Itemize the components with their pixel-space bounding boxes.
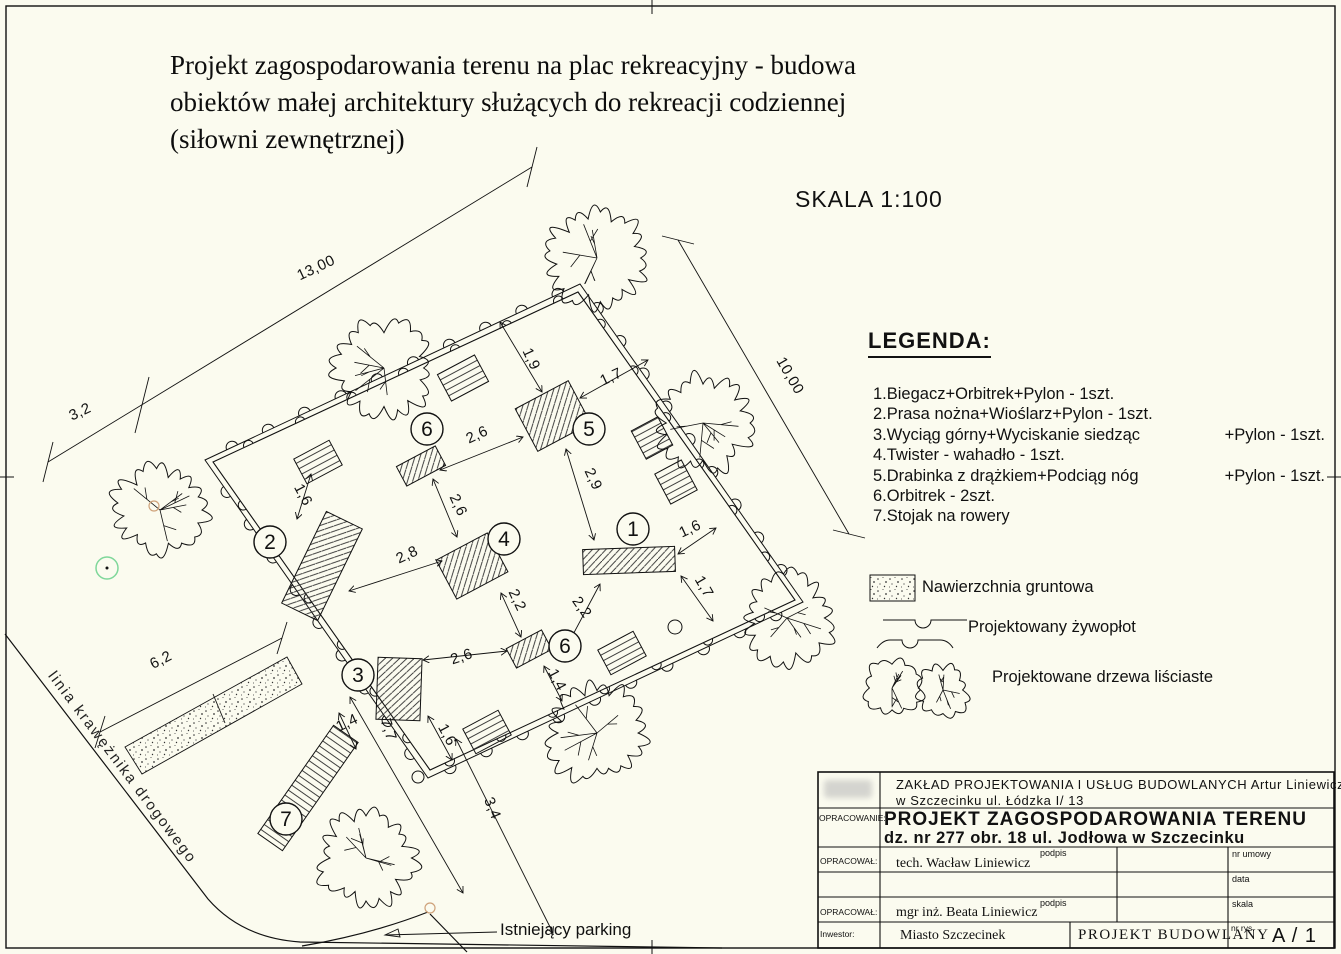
point-marker [668,620,682,634]
hedge-symbol [877,620,967,648]
svg-text:1,6: 1,6 [434,721,460,749]
svg-text:10,00: 10,00 [773,354,808,397]
legend-item: 7.Stojak na rowery [873,506,1325,526]
svg-text:6: 6 [421,418,433,441]
svg-text:1,7: 1,7 [691,573,717,601]
svg-text:1,4: 1,4 [544,666,570,694]
svg-text:2,6: 2,6 [448,645,475,668]
marker-3: 3 [342,659,374,691]
svg-text:7: 7 [280,808,292,831]
svg-text:2,2: 2,2 [568,593,595,621]
ground-surface-path [125,657,302,774]
equipment-item-7-bike-rack [258,725,358,850]
stamp-blur [824,780,872,798]
marker-7: 7 [270,803,302,835]
svg-text:1,6: 1,6 [676,516,703,541]
equipment-item-2 [282,511,363,620]
equipment-item-1 [583,546,676,574]
marker-4: 4 [488,523,520,555]
opracowal-label-1: OPRACOWAŁ: [820,856,877,866]
legend-item: 2.Prasa nożna+Wioślarz+Pylon - 1szt. [873,404,1325,424]
page-title-line-1: Projekt zagospodarowania terenu na plac … [170,50,856,81]
tree-icon [317,807,422,908]
inwestor-value: Miasto Szczecinek [900,928,1005,944]
company-name-line-1: ZAKŁAD PROJEKTOWANIA I USŁUG BUDOWLANYCH… [896,777,1341,792]
drawing-number: A / 1 [1272,925,1317,948]
marker-2: 2 [254,526,286,558]
point-marker [412,771,424,783]
marker-6b: 6 [549,630,581,662]
point-marker [425,903,435,913]
legend-symbol-label-ground: Nawierzchnia gruntowa [922,578,1094,597]
svg-text:2,6: 2,6 [463,422,490,447]
legend-item: 6.Orbitrek - 2szt. [873,486,1325,506]
page-title-line-2: obiektów małej architektury służących do… [170,87,846,118]
legend-item: 5.Drabinka z drążkiem+Podciąg nóg+Pylon … [873,466,1325,486]
bench [598,631,646,675]
svg-text:2,8: 2,8 [393,542,420,567]
svg-text:1: 1 [627,518,639,541]
project-title-line-1: PROJEKT ZAGOSPODAROWANIA TERENU [884,809,1307,831]
inwestor-label: Inwestor: [820,929,855,939]
tree-symbols [863,658,970,718]
svg-text:2,6: 2,6 [446,491,471,518]
ground-surface-swatch [870,575,915,601]
legend-symbol-label-trees: Projektowane drzewa liściaste [992,668,1213,687]
svg-text:2: 2 [264,531,276,554]
tree-icon [863,658,925,714]
page-title-line-3: (siłowni zewnętrznej) [170,124,405,155]
svg-text:6: 6 [559,635,571,658]
svg-text:13,00: 13,00 [294,252,337,284]
opracowanie-label: OPRACOWANIE: [819,813,886,823]
svg-text:5: 5 [583,418,595,441]
svg-text:6,2: 6,2 [147,647,175,672]
opracowal-label-2: OPRACOWAŁ: [820,907,877,917]
equipment-item-3 [376,657,422,720]
svg-text:3,2: 3,2 [66,399,93,424]
svg-text:4: 4 [498,528,510,551]
svg-text:3,4: 3,4 [480,795,504,822]
author-2: mgr inż. Beata Liniewicz [896,905,1038,921]
svg-text:2,9: 2,9 [581,465,606,492]
marker-1: 1 [617,513,649,545]
equipment-item-6a [396,446,445,486]
bench [463,710,511,754]
data-label: data [1232,874,1250,884]
bench [655,460,697,504]
bench [294,440,342,484]
legend-heading: LEGENDA: [868,328,991,358]
svg-text:1,9: 1,9 [519,345,544,372]
tree-icon [545,680,650,783]
author-1: tech. Wacław Liniewicz [896,856,1030,872]
project-title-line-2: dz. nr 277 obr. 18 ul. Jodłowa w Szczeci… [884,829,1245,848]
podpis-label-2: podpis [1040,898,1067,908]
marker-5: 5 [573,413,605,445]
svg-text:1,6: 1,6 [290,481,316,509]
skala-label: skala [1232,899,1253,909]
marker-6a: 6 [411,413,443,445]
legend-item: 1.Biegacz+Orbitrek+Pylon - 1szt. [873,384,1325,404]
legend-symbol-label-hedge: Projektowany żywopłot [968,618,1136,637]
legend-list: 1.Biegacz+Orbitrek+Pylon - 1szt. 2.Prasa… [873,384,1325,527]
svg-text:3: 3 [352,664,364,687]
podpis-label-1: podpis [1040,848,1067,858]
drawing-sheet: 13,00 3,2 10,00 6,2 1,9 1,7 2,6 2,9 2,6 … [0,0,1341,954]
legend-item: 3.Wyciąg górny+Wyciskanie siedząc+Pylon … [873,425,1325,445]
internal-dimension-leaders [297,322,716,937]
company-name-line-2: w Szczecinku ul. Łódzka I/ 13 [896,793,1084,808]
bench [437,355,488,401]
legend-item: 4.Twister - wahadło - 1szt. [873,445,1325,465]
equipment-item-6b [506,630,552,668]
existing-parking-label: Istniejący parking [500,920,631,940]
nr-rys-label: nr rys. [1231,923,1255,933]
nr-umowy-label: nr umowy [1232,849,1271,859]
point-marker [149,501,159,511]
scale-label: SKALA 1:100 [795,186,943,213]
